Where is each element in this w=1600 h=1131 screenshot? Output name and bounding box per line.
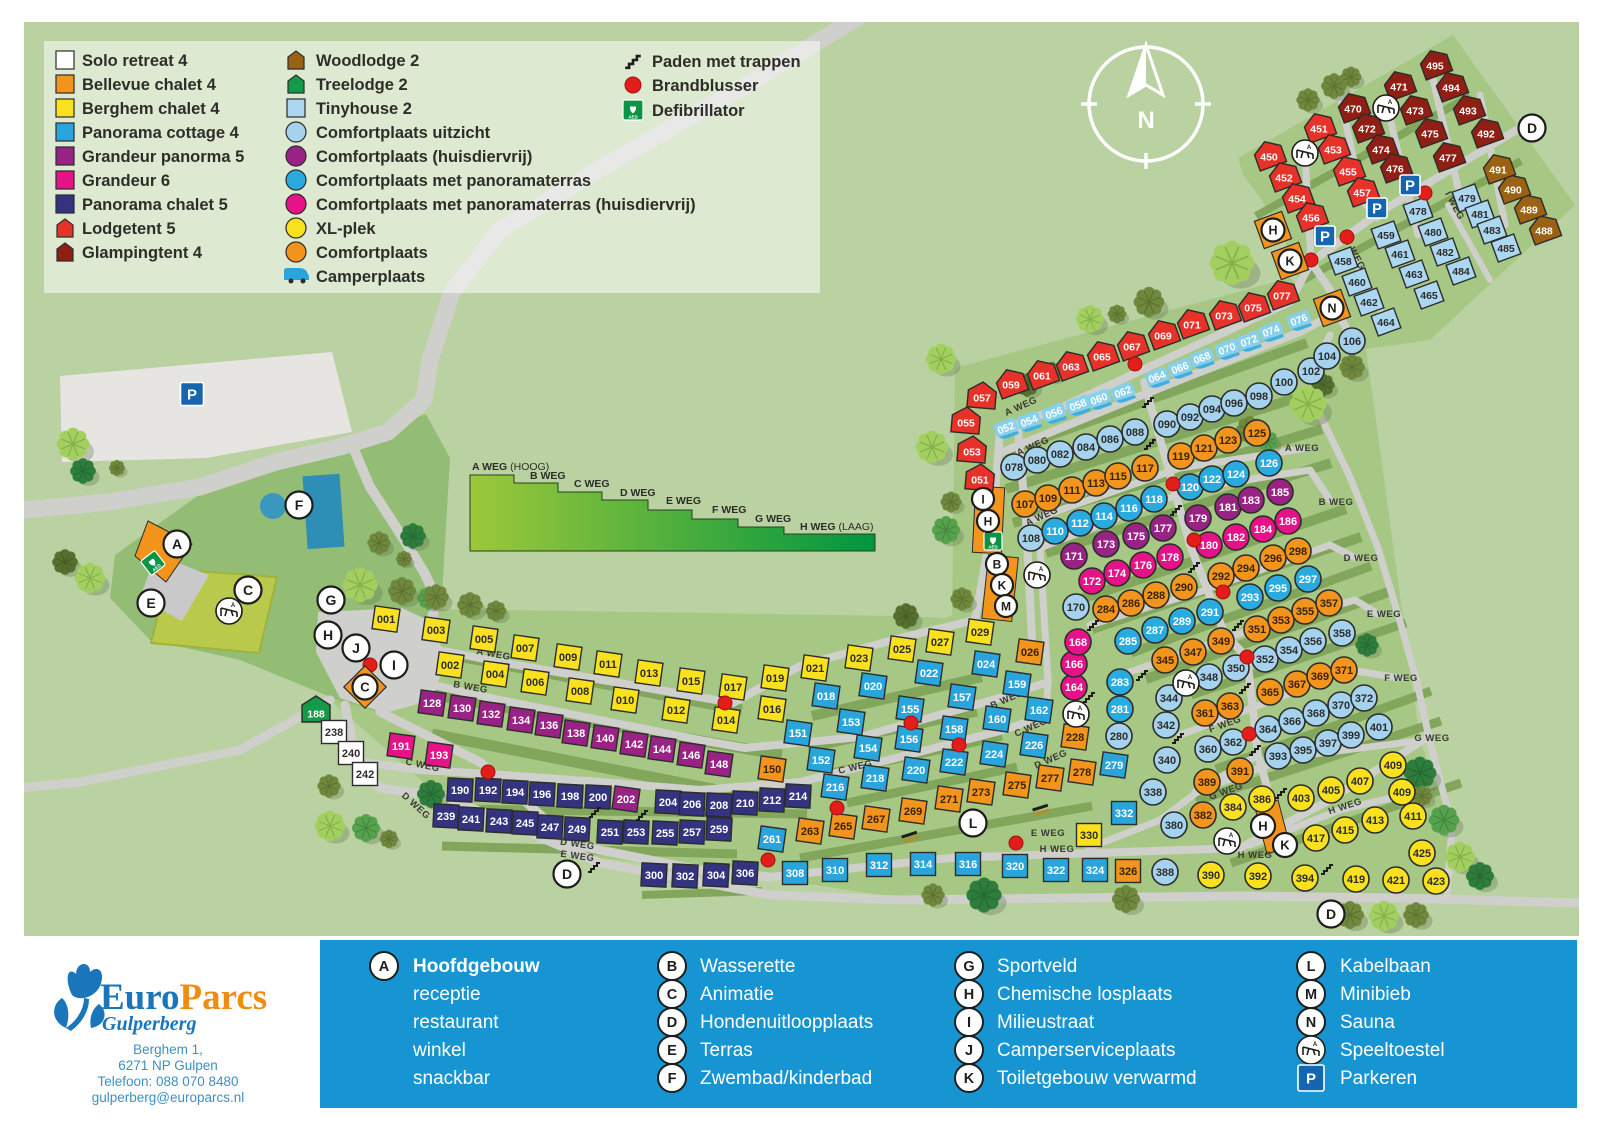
svg-text:153: 153 [842, 717, 860, 729]
svg-text:Grandeur 6: Grandeur 6 [82, 172, 170, 190]
svg-text:Glampingtent 4: Glampingtent 4 [82, 244, 203, 262]
svg-text:051: 051 [971, 475, 989, 487]
svg-text:157: 157 [953, 692, 971, 704]
svg-text:013: 013 [640, 668, 658, 680]
svg-text:347: 347 [1184, 647, 1202, 659]
svg-text:H: H [984, 514, 993, 528]
svg-text:360: 360 [1199, 744, 1217, 756]
svg-text:029: 029 [971, 627, 989, 639]
svg-text:267: 267 [867, 814, 885, 826]
svg-text:098: 098 [1250, 391, 1268, 403]
svg-text:206: 206 [683, 799, 701, 811]
svg-text:C: C [667, 987, 678, 1003]
svg-text:356: 356 [1304, 636, 1322, 648]
svg-text:080: 080 [1028, 455, 1046, 467]
svg-text:063: 063 [1062, 362, 1080, 374]
svg-text:259: 259 [710, 824, 728, 836]
svg-text:H WEG: H WEG [1238, 850, 1273, 861]
svg-text:Hoofdgebouw: Hoofdgebouw [413, 956, 540, 977]
svg-text:B: B [667, 959, 677, 975]
svg-text:057: 057 [973, 393, 991, 405]
svg-text:P: P [1372, 201, 1382, 218]
svg-text:324: 324 [1086, 865, 1105, 877]
svg-text:178: 178 [1161, 552, 1179, 564]
svg-text:Gulperberg: Gulperberg [102, 1013, 196, 1035]
svg-text:090: 090 [1158, 419, 1176, 431]
svg-text:188: 188 [307, 709, 325, 721]
svg-text:184: 184 [1254, 524, 1273, 536]
svg-text:H: H [1268, 224, 1277, 238]
svg-text:Speeltoestel: Speeltoestel [1340, 1040, 1445, 1061]
svg-text:191: 191 [392, 741, 410, 753]
svg-text:077: 077 [1273, 291, 1291, 303]
svg-text:071: 071 [1183, 320, 1201, 332]
svg-text:419: 419 [1347, 874, 1365, 886]
svg-text:J: J [965, 1043, 973, 1059]
svg-text:297: 297 [1299, 574, 1317, 586]
svg-text:368: 368 [1307, 708, 1325, 720]
svg-text:123: 123 [1219, 435, 1237, 447]
svg-text:355: 355 [1296, 606, 1314, 618]
svg-text:478: 478 [1409, 206, 1427, 218]
svg-text:460: 460 [1348, 277, 1366, 289]
svg-text:N: N [1327, 302, 1336, 316]
svg-text:489: 489 [1520, 205, 1538, 217]
svg-text:D: D [667, 1015, 677, 1031]
svg-text:006: 006 [526, 677, 544, 689]
svg-text:279: 279 [1105, 760, 1123, 772]
svg-text:401: 401 [1370, 722, 1388, 734]
svg-text:020: 020 [864, 681, 882, 693]
svg-text:130: 130 [453, 703, 471, 715]
svg-text:EuroParcs: EuroParcs [100, 977, 267, 1018]
svg-text:D WEG: D WEG [1344, 553, 1379, 564]
svg-text:024: 024 [977, 659, 996, 671]
svg-text:snackbar: snackbar [413, 1068, 491, 1089]
svg-text:283: 283 [1111, 677, 1129, 689]
svg-text:Berghem chalet 4: Berghem chalet 4 [82, 100, 220, 118]
svg-text:061: 061 [1033, 371, 1051, 383]
svg-text:001: 001 [377, 614, 395, 626]
svg-text:012: 012 [667, 705, 685, 717]
svg-text:174: 174 [1108, 568, 1127, 580]
svg-text:286: 286 [1122, 598, 1140, 610]
svg-text:465: 465 [1420, 290, 1438, 302]
svg-text:265: 265 [834, 821, 852, 833]
svg-text:461: 461 [1391, 249, 1409, 261]
svg-text:G: G [326, 592, 337, 608]
svg-text:140: 140 [596, 733, 614, 745]
svg-text:394: 394 [1296, 873, 1315, 885]
svg-text:Comfortplaats uitzicht: Comfortplaats uitzicht [316, 124, 491, 142]
svg-text:330: 330 [1080, 830, 1098, 842]
svg-text:194: 194 [506, 787, 525, 799]
svg-text:399: 399 [1342, 730, 1360, 742]
svg-text:142: 142 [625, 739, 643, 751]
svg-text:Animatie: Animatie [700, 984, 774, 1005]
svg-text:411: 411 [1404, 811, 1422, 823]
svg-text:479: 479 [1458, 193, 1476, 205]
svg-text:Parkeren: Parkeren [1340, 1068, 1417, 1089]
svg-text:477: 477 [1439, 153, 1457, 165]
svg-text:108: 108 [1022, 533, 1040, 545]
svg-text:240: 240 [342, 748, 360, 760]
svg-text:196: 196 [533, 789, 551, 801]
svg-text:A: A [1307, 145, 1312, 151]
svg-text:112: 112 [1071, 518, 1089, 530]
svg-text:251: 251 [601, 827, 619, 839]
svg-text:296: 296 [1264, 553, 1282, 565]
svg-text:G: G [963, 959, 974, 975]
svg-text:Hondenuitloopplaats: Hondenuitloopplaats [700, 1012, 873, 1033]
svg-text:E WEG: E WEG [1031, 828, 1065, 839]
svg-text:367: 367 [1288, 679, 1306, 691]
svg-text:122: 122 [1203, 474, 1221, 486]
svg-text:receptie: receptie [413, 984, 481, 1005]
svg-text:148: 148 [710, 759, 728, 771]
svg-text:171: 171 [1065, 551, 1083, 563]
svg-text:397: 397 [1319, 738, 1337, 750]
svg-text:winkel: winkel [412, 1040, 466, 1061]
svg-text:218: 218 [866, 773, 884, 785]
svg-text:358: 358 [1333, 628, 1351, 640]
svg-text:007: 007 [516, 643, 534, 655]
svg-text:204: 204 [659, 797, 678, 809]
svg-text:F WEG: F WEG [712, 504, 746, 516]
svg-text:025: 025 [893, 644, 911, 656]
svg-text:019: 019 [766, 673, 784, 685]
svg-text:314: 314 [914, 859, 933, 871]
svg-text:241: 241 [462, 814, 480, 826]
svg-text:278: 278 [1073, 767, 1091, 779]
svg-text:281: 281 [1111, 704, 1129, 716]
svg-text:284: 284 [1097, 604, 1116, 616]
svg-text:484: 484 [1452, 266, 1470, 278]
svg-text:121: 121 [1195, 443, 1213, 455]
svg-text:271: 271 [940, 794, 958, 806]
svg-text:H WEG: H WEG [1040, 844, 1075, 855]
svg-text:471: 471 [1390, 82, 1408, 94]
svg-text:366: 366 [1283, 716, 1301, 728]
svg-text:239: 239 [437, 811, 455, 823]
svg-text:304: 304 [707, 870, 726, 882]
svg-text:B WEG: B WEG [530, 470, 566, 482]
svg-text:164: 164 [1065, 682, 1084, 694]
svg-text:Comfortplaats met panoramaterr: Comfortplaats met panoramaterras [316, 172, 591, 190]
svg-text:014: 014 [717, 715, 736, 727]
svg-text:488: 488 [1535, 226, 1553, 238]
svg-text:391: 391 [1231, 766, 1249, 778]
svg-text:176: 176 [1134, 560, 1152, 572]
svg-text:352: 352 [1256, 654, 1274, 666]
svg-text:021: 021 [806, 663, 824, 675]
svg-text:409: 409 [1393, 787, 1411, 799]
svg-text:238: 238 [325, 727, 343, 739]
svg-text:470: 470 [1344, 104, 1362, 116]
svg-text:M: M [1305, 987, 1317, 1003]
svg-text:C: C [360, 680, 370, 695]
svg-text:462: 462 [1360, 297, 1378, 309]
svg-text:F WEG: F WEG [1384, 673, 1418, 684]
svg-text:Toiletgebouw verwarmd: Toiletgebouw verwarmd [997, 1068, 1197, 1089]
svg-text:A: A [1188, 675, 1193, 681]
svg-text:K: K [998, 578, 1007, 592]
svg-text:N: N [1306, 1015, 1316, 1031]
svg-text:342: 342 [1157, 720, 1175, 732]
svg-text:289: 289 [1173, 616, 1191, 628]
svg-text:482: 482 [1436, 247, 1454, 259]
svg-text:A: A [231, 603, 236, 609]
svg-text:I: I [392, 657, 396, 673]
svg-text:463: 463 [1405, 269, 1423, 281]
svg-text:275: 275 [1008, 780, 1026, 792]
svg-text:P: P [187, 387, 197, 404]
svg-text:288: 288 [1147, 590, 1165, 602]
svg-text:495: 495 [1426, 61, 1444, 73]
svg-text:423: 423 [1427, 876, 1445, 888]
svg-text:065: 065 [1093, 352, 1111, 364]
svg-text:L: L [969, 815, 978, 831]
svg-text:273: 273 [972, 787, 990, 799]
svg-text:H: H [1258, 819, 1267, 834]
svg-text:Lodgetent 5: Lodgetent 5 [82, 220, 176, 238]
svg-text:K: K [964, 1071, 975, 1087]
svg-text:A: A [1039, 567, 1044, 573]
svg-text:474: 474 [1372, 145, 1390, 157]
svg-text:175: 175 [1127, 531, 1145, 543]
svg-text:291: 291 [1201, 607, 1219, 619]
svg-text:475: 475 [1421, 129, 1439, 141]
svg-text:124: 124 [1227, 469, 1246, 481]
svg-text:312: 312 [870, 860, 888, 872]
svg-text:096: 096 [1225, 398, 1243, 410]
svg-text:361: 361 [1196, 708, 1214, 720]
svg-text:Kabelbaan: Kabelbaan [1340, 956, 1431, 977]
svg-text:A WEG: A WEG [1285, 443, 1319, 454]
svg-text:392: 392 [1249, 871, 1267, 883]
svg-text:114: 114 [1095, 511, 1114, 523]
svg-text:357: 357 [1320, 598, 1338, 610]
svg-text:138: 138 [567, 728, 585, 740]
svg-text:Solo retreat 4: Solo retreat 4 [82, 52, 188, 70]
svg-text:Camperserviceplaats: Camperserviceplaats [997, 1040, 1175, 1061]
svg-text:483: 483 [1483, 225, 1501, 237]
svg-text:Bellevue chalet 4: Bellevue chalet 4 [82, 76, 217, 94]
svg-text:086: 086 [1101, 434, 1119, 446]
svg-text:152: 152 [812, 755, 830, 767]
svg-text:005: 005 [475, 634, 493, 646]
svg-text:Comfortplaats (huisdiervrij): Comfortplaats (huisdiervrij) [316, 148, 532, 166]
svg-text:B: B [993, 557, 1002, 571]
svg-text:257: 257 [683, 827, 701, 839]
svg-text:345: 345 [1156, 655, 1174, 667]
svg-text:370: 370 [1332, 700, 1350, 712]
svg-text:109: 109 [1039, 493, 1057, 505]
svg-text:069: 069 [1154, 331, 1172, 343]
svg-text:150: 150 [763, 764, 781, 776]
svg-text:472: 472 [1358, 124, 1376, 136]
svg-text:354: 354 [1280, 645, 1299, 657]
svg-text:292: 292 [1212, 571, 1230, 583]
svg-text:102: 102 [1302, 366, 1320, 378]
svg-text:255: 255 [656, 828, 674, 840]
svg-text:216: 216 [826, 782, 844, 794]
svg-text:K: K [1280, 838, 1290, 853]
svg-text:185: 185 [1271, 487, 1289, 499]
svg-text:003: 003 [427, 625, 445, 637]
svg-text:P: P [1405, 178, 1415, 195]
svg-text:A: A [379, 959, 390, 975]
svg-text:002: 002 [441, 660, 459, 672]
svg-text:AED: AED [628, 115, 638, 120]
svg-text:285: 285 [1119, 636, 1137, 648]
svg-text:388: 388 [1156, 867, 1174, 879]
svg-text:170: 170 [1067, 602, 1085, 614]
svg-text:212: 212 [763, 795, 781, 807]
svg-text:369: 369 [1311, 671, 1329, 683]
svg-text:166: 166 [1065, 659, 1083, 671]
svg-text:C WEG: C WEG [574, 478, 610, 490]
svg-text:023: 023 [850, 653, 868, 665]
svg-text:136: 136 [540, 720, 558, 732]
svg-text:A: A [172, 536, 182, 552]
svg-text:113: 113 [1087, 478, 1105, 490]
svg-text:456: 456 [1302, 213, 1320, 225]
svg-text:Defibrillator: Defibrillator [652, 102, 745, 120]
svg-text:144: 144 [653, 744, 672, 756]
svg-text:Paden met trappen: Paden met trappen [652, 53, 801, 71]
svg-text:158: 158 [945, 724, 963, 736]
svg-text:249: 249 [568, 824, 586, 836]
svg-text:395: 395 [1294, 745, 1312, 757]
svg-text:480: 480 [1424, 227, 1442, 239]
svg-text:349: 349 [1212, 636, 1230, 648]
svg-text:154: 154 [859, 743, 878, 755]
svg-text:M: M [1001, 599, 1011, 613]
svg-text:198: 198 [561, 791, 579, 803]
svg-text:226: 226 [1025, 740, 1043, 752]
svg-text:Chemische losplaats: Chemische losplaats [997, 984, 1172, 1005]
svg-text:Brandblusser: Brandblusser [652, 77, 759, 95]
svg-text:126: 126 [1260, 458, 1278, 470]
svg-text:293: 293 [1241, 592, 1259, 604]
svg-text:Camperplaats: Camperplaats [316, 268, 425, 286]
svg-text:119: 119 [1172, 451, 1190, 463]
svg-text:186: 186 [1279, 516, 1297, 528]
svg-text:Woodlodge 2: Woodlodge 2 [316, 52, 419, 70]
svg-text:310: 310 [826, 865, 844, 877]
svg-text:L: L [1307, 959, 1316, 975]
svg-text:Terras: Terras [700, 1040, 753, 1061]
svg-text:425: 425 [1413, 848, 1431, 860]
svg-text:128: 128 [423, 698, 441, 710]
svg-text:173: 173 [1097, 539, 1115, 551]
svg-text:415: 415 [1336, 825, 1354, 837]
svg-text:015: 015 [682, 676, 700, 688]
svg-text:300: 300 [645, 870, 663, 882]
svg-text:075: 075 [1244, 303, 1262, 315]
svg-text:125: 125 [1248, 428, 1266, 440]
svg-text:Wasserette: Wasserette [700, 956, 795, 977]
svg-text:D: D [562, 866, 572, 882]
svg-text:295: 295 [1269, 583, 1287, 595]
svg-text:450: 450 [1260, 152, 1278, 164]
svg-text:371: 371 [1335, 665, 1353, 677]
svg-text:G WEG: G WEG [755, 513, 791, 525]
svg-text:350: 350 [1227, 663, 1245, 675]
svg-text:363: 363 [1221, 701, 1239, 713]
svg-text:017: 017 [724, 682, 742, 694]
svg-text:287: 287 [1146, 625, 1164, 637]
svg-text:202: 202 [617, 794, 635, 806]
svg-text:010: 010 [616, 695, 634, 707]
svg-text:Grandeur panorma 5: Grandeur panorma 5 [82, 148, 244, 166]
svg-text:224: 224 [985, 749, 1004, 761]
svg-text:117: 117 [1136, 463, 1154, 475]
svg-text:481: 481 [1471, 209, 1489, 221]
svg-text:451: 451 [1310, 124, 1328, 136]
svg-text:AED: AED [988, 545, 998, 550]
svg-text:473: 473 [1406, 106, 1424, 118]
svg-text:302: 302 [676, 871, 694, 883]
svg-text:C: C [243, 582, 253, 598]
svg-text:022: 022 [920, 668, 938, 680]
svg-text:078: 078 [1005, 462, 1023, 474]
svg-text:243: 243 [490, 816, 508, 828]
svg-text:220: 220 [907, 765, 925, 777]
svg-text:455: 455 [1339, 167, 1357, 179]
svg-text:494: 494 [1442, 83, 1460, 95]
svg-text:092: 092 [1181, 412, 1199, 424]
svg-text:110: 110 [1046, 526, 1064, 538]
svg-text:193: 193 [430, 750, 448, 762]
svg-text:018: 018 [817, 691, 835, 703]
svg-text:F: F [668, 1071, 677, 1087]
svg-text:491: 491 [1489, 165, 1507, 177]
svg-text:P: P [1306, 1071, 1316, 1088]
svg-text:290: 290 [1175, 582, 1193, 594]
svg-text:458: 458 [1334, 256, 1352, 268]
svg-text:476: 476 [1386, 164, 1404, 176]
svg-text:160: 160 [988, 714, 1006, 726]
svg-text:228: 228 [1066, 732, 1084, 744]
svg-text:094: 094 [1203, 404, 1222, 416]
svg-text:027: 027 [931, 637, 949, 649]
svg-text:192: 192 [479, 785, 497, 797]
svg-text:XL-plek: XL-plek [316, 220, 376, 238]
svg-text:120: 120 [1181, 482, 1199, 494]
svg-text:179: 179 [1189, 513, 1207, 525]
svg-text:Sauna: Sauna [1340, 1012, 1395, 1033]
svg-text:E WEG: E WEG [666, 495, 701, 507]
svg-text:E: E [146, 595, 155, 611]
svg-text:492: 492 [1477, 129, 1495, 141]
svg-text:084: 084 [1077, 442, 1096, 454]
svg-text:306: 306 [736, 868, 754, 880]
svg-text:A: A [1078, 706, 1083, 712]
svg-text:182: 182 [1227, 532, 1245, 544]
svg-text:214: 214 [789, 791, 808, 803]
svg-text:106: 106 [1343, 336, 1361, 348]
svg-text:210: 210 [736, 798, 754, 810]
svg-text:004: 004 [486, 669, 505, 681]
svg-text:132: 132 [482, 709, 500, 721]
svg-text:181: 181 [1219, 502, 1237, 514]
svg-text:253: 253 [627, 827, 645, 839]
svg-text:104: 104 [1318, 351, 1337, 363]
svg-text:393: 393 [1269, 751, 1287, 763]
svg-text:K: K [1285, 255, 1294, 269]
